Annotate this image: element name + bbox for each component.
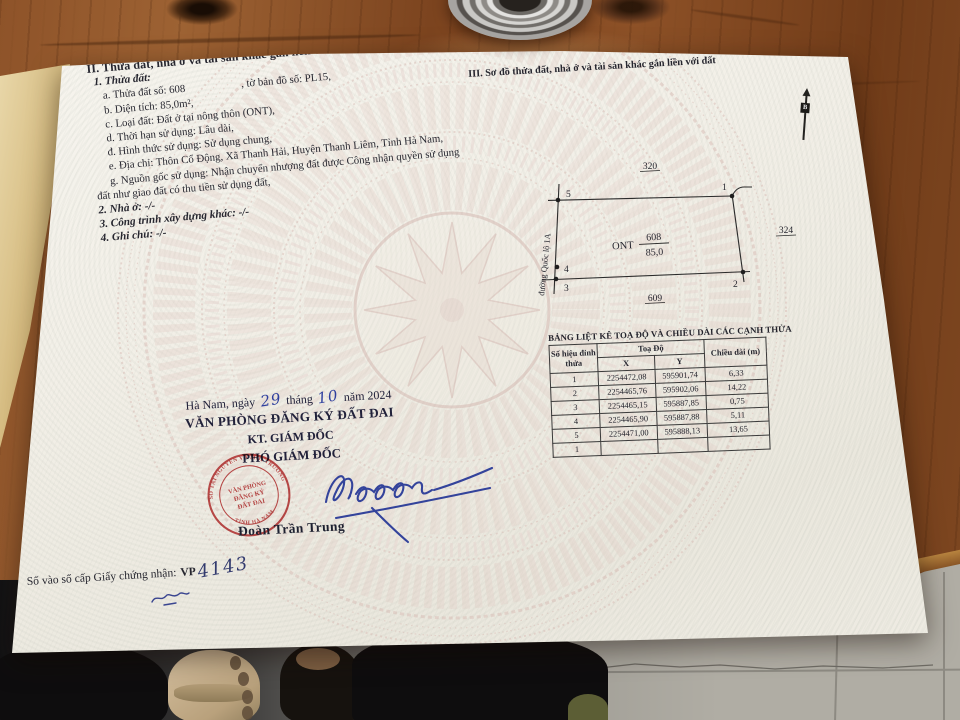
col-header-length: Chiều dài (m) [704,337,767,367]
section-ii-block: II. Thửa đất, nhà ở và tài sản khác gắn … [86,26,530,246]
col-header-vertex: Số hiệu đỉnh thửa [549,344,598,374]
road-label: đường Quốc lộ 1A [537,233,553,296]
parcel-area: 85,0 [645,247,663,259]
parcel-type-label: ONT [612,240,635,252]
north-arrow-icon: B [795,90,815,145]
vertex-label-2: 2 [733,280,738,290]
handwritten-signature [312,450,512,550]
north-arrow-label: B [800,103,810,114]
handwritten-day: 29 [257,389,285,411]
coordinate-table-block: BẢNG LIỆT KÊ TOẠ ĐỘ VÀ CHIỀU DÀI CÁC CẠN… [548,324,783,458]
vertex-label-4: 4 [564,265,569,275]
parcel-number: 608 [646,232,662,244]
certificate-sheet: II. Thửa đất, nhà ở và tài sản khác gắn … [0,0,960,720]
vertex-label-3: 3 [564,284,569,294]
coordinate-table: Số hiệu đỉnh thửa Toạ Độ Chiều dài (m) X… [548,337,770,458]
handwritten-month: 10 [314,386,342,408]
serial-prefix: VP [180,565,196,579]
neighbor-parcel-right: 324 [779,226,794,236]
spacer [186,87,242,92]
parcel-diagram: 1 2 3 4 5 320 324 609 ONT 608 85,0 [528,148,818,323]
photo-scene: II. Thửa đất, nhà ở và tài sản khác gắn … [0,0,960,720]
handwritten-initials [148,590,192,610]
north-arrow-line [802,94,807,140]
vertex-label-5: 5 [566,190,571,200]
vertex-label-1: 1 [722,183,727,193]
certificate-sheet-wrap: II. Thửa đất, nhà ở và tài sản khác gắn … [0,0,960,720]
